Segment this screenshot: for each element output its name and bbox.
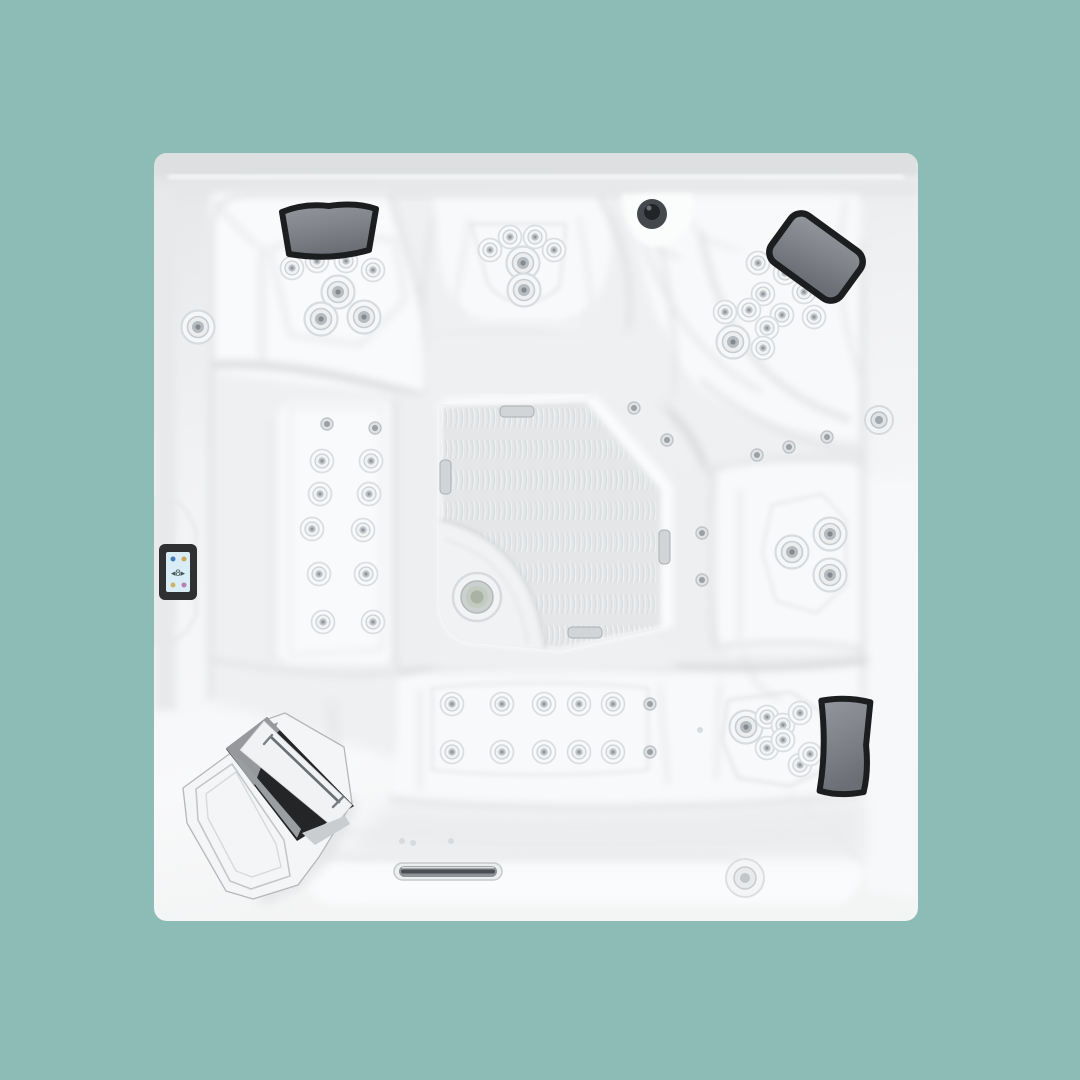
svg-text:◂8▸: ◂8▸	[171, 568, 186, 578]
